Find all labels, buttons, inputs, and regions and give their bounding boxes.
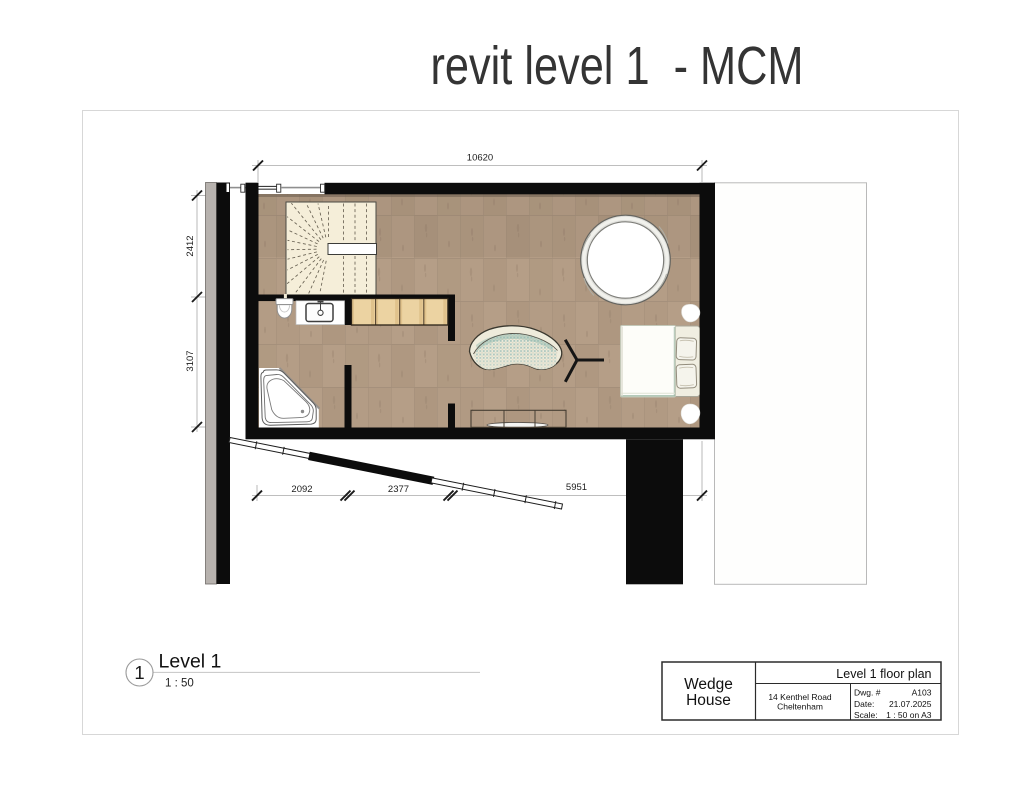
- svg-text:Level 1: Level 1: [159, 651, 222, 673]
- svg-text:2412: 2412: [185, 235, 196, 256]
- svg-text:Level 1 floor plan: Level 1 floor plan: [836, 667, 931, 681]
- svg-text:Cheltenham: Cheltenham: [777, 702, 823, 712]
- svg-text:1 : 50 on A3: 1 : 50 on A3: [886, 710, 932, 720]
- svg-text:21.07.2025: 21.07.2025: [889, 699, 932, 709]
- svg-text:2092: 2092: [291, 484, 312, 495]
- svg-text:Date:: Date:: [854, 699, 874, 709]
- svg-text:10620: 10620: [467, 153, 493, 164]
- svg-text:revit level 1 - MCM: revit level 1 - MCM: [431, 36, 804, 96]
- svg-text:Scale:: Scale:: [854, 710, 878, 720]
- svg-text:1: 1: [134, 662, 144, 683]
- svg-text:House: House: [686, 692, 731, 709]
- svg-text:14 Kenthel Road: 14 Kenthel Road: [768, 692, 832, 702]
- svg-text:1 : 50: 1 : 50: [165, 678, 194, 690]
- svg-text:Wedge: Wedge: [684, 676, 733, 693]
- svg-text:5951: 5951: [566, 482, 587, 493]
- svg-text:Dwg. #: Dwg. #: [854, 688, 881, 698]
- svg-text:A103: A103: [912, 688, 932, 698]
- svg-text:3107: 3107: [185, 350, 196, 371]
- svg-text:2377: 2377: [388, 484, 409, 495]
